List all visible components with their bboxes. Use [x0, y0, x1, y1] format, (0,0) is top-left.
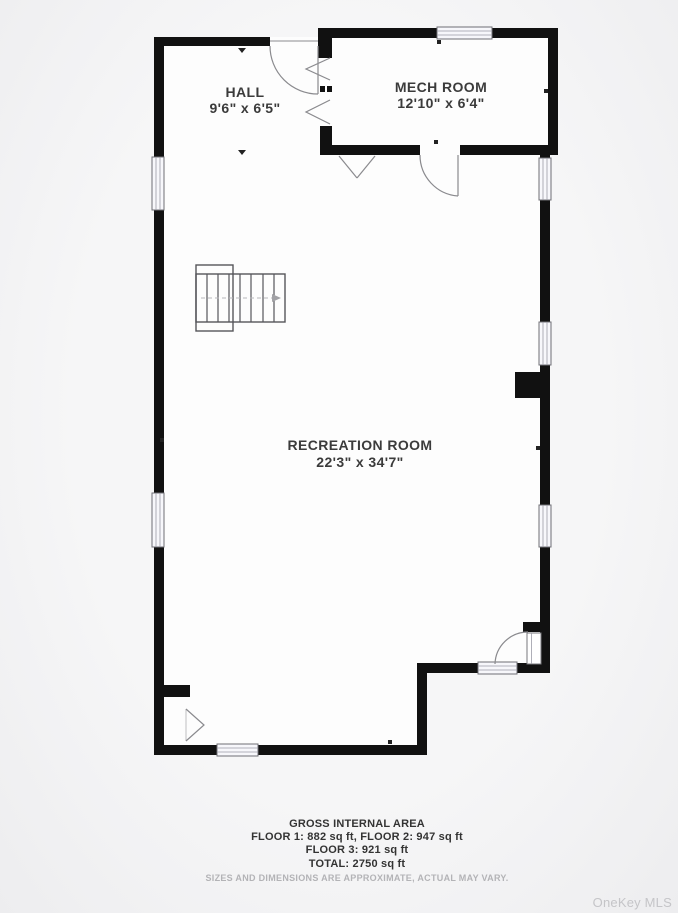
wall-right-stub — [523, 622, 542, 632]
marker-left-wall — [160, 438, 164, 442]
area-summary: GROSS INTERNAL AREA FLOOR 1: 882 sq ft, … — [205, 818, 508, 885]
wall-jog-vertical — [417, 663, 427, 755]
area-total: TOTAL: 2750 sq ft — [205, 858, 508, 871]
window-right-lower — [539, 505, 551, 547]
window-left-lower — [152, 493, 164, 547]
marker-mech-top — [437, 40, 441, 44]
wall-closet-stub — [164, 685, 190, 697]
window-mech-top — [437, 27, 492, 39]
recreation-room-dimensions: 22'3" x 34'7" — [316, 454, 403, 470]
onekey-mls-watermark: OneKey MLS — [593, 895, 672, 910]
floorplan-page: HALL 9'6" x 6'5" MECH ROOM 12'10" x 6'4"… — [0, 0, 678, 913]
wall-mech-bottom-a — [320, 145, 420, 155]
area-summary-title: GROSS INTERNAL AREA — [205, 818, 508, 831]
recreation-room-label: RECREATION ROOM — [288, 437, 433, 453]
wall-mech-right — [548, 28, 558, 155]
hall-room-dimensions: 9'6" x 6'5" — [209, 100, 280, 116]
wall-mech-left-dot-b — [327, 86, 332, 92]
mech-room-label: MECH ROOM — [395, 79, 487, 95]
area-disclaimer: SIZES AND DIMENSIONS ARE APPROXIMATE, AC… — [205, 872, 508, 885]
window-left-upper — [152, 157, 164, 210]
hall-room-label: HALL — [226, 84, 265, 100]
marker-bottom-wall — [388, 740, 392, 744]
floor-footprint — [154, 28, 558, 755]
wall-bottom — [154, 745, 427, 755]
window-right-middle — [539, 322, 551, 365]
stairs — [196, 265, 285, 331]
wall-mech-bottom-b — [460, 145, 558, 155]
wall-left — [154, 37, 164, 755]
wall-mech-left-dot-a — [320, 86, 325, 92]
marker-mech-right — [544, 89, 548, 93]
wall-chimney — [515, 372, 550, 398]
window-right-upper — [539, 158, 551, 200]
wall-hall-top — [154, 37, 270, 46]
area-floor-3: FLOOR 3: 921 sq ft — [205, 844, 508, 857]
marker-mech-bottom — [434, 140, 438, 144]
window-jog — [478, 662, 517, 674]
area-floor-1-2: FLOOR 1: 882 sq ft, FLOOR 2: 947 sq ft — [205, 831, 508, 844]
marker-right-wall — [536, 446, 540, 450]
window-bottom — [217, 744, 258, 756]
wall-main-right — [540, 155, 550, 673]
mech-room-dimensions: 12'10" x 6'4" — [397, 95, 484, 111]
